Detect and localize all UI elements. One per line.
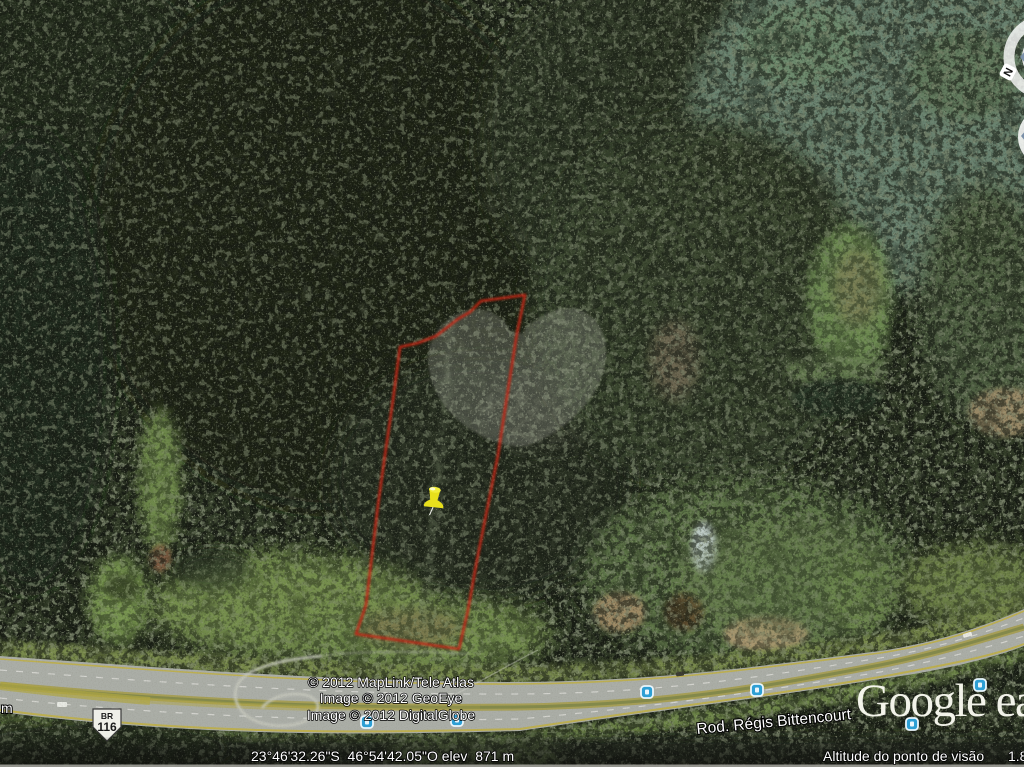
svg-text:© 2012 MapLink/Tele Atlas: © 2012 MapLink/Tele Atlas: [308, 674, 474, 690]
svg-text:Image © 2012 GeoEye: Image © 2012 GeoEye: [320, 690, 463, 706]
svg-text:Google ea: Google ea: [856, 675, 1024, 727]
svg-text:Altitude do ponto de visão: Altitude do ponto de visão: [823, 748, 984, 764]
svg-text:1.8: 1.8: [1008, 748, 1024, 764]
svg-text:Image © 2012 DigitalGlobe: Image © 2012 DigitalGlobe: [307, 707, 476, 723]
svg-text:23°46'32.26"S 46°54'42.05"O e: 23°46'32.26"S 46°54'42.05"O elev 871 m: [251, 748, 514, 764]
svg-text:116: 116: [97, 720, 117, 734]
svg-text:m: m: [1, 700, 13, 716]
